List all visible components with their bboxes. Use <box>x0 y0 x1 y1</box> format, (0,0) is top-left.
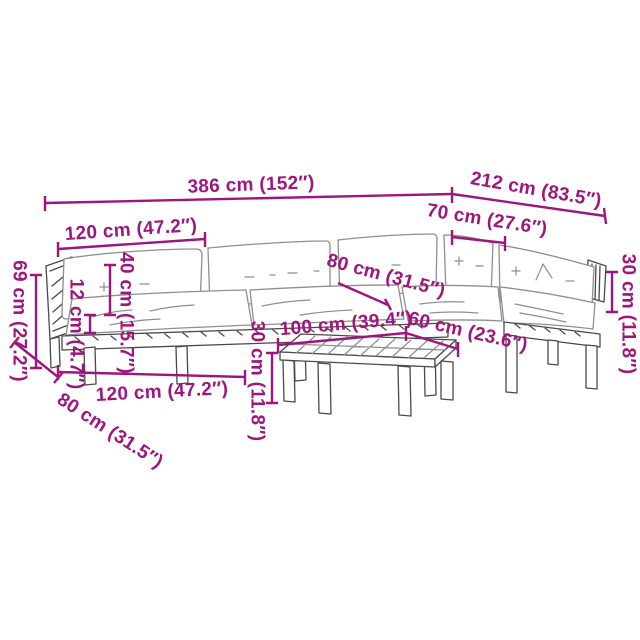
dimension-diagram-canvas: 386 cm (152″) 212 cm (83.5″) 120 cm (47.… <box>0 0 640 640</box>
dimension-label-total-height: 69 cm (27.2″) <box>10 260 29 382</box>
dimension-label-overall-width: 386 cm (152″) <box>187 173 315 196</box>
dimension-label-back-cushion-height: 30 cm (11.8″) <box>619 254 638 375</box>
dimension-label-backrest-height: 40 cm (15.7″) <box>117 252 136 374</box>
dimension-label-armrest-above-seat: 12 cm (4.7″) <box>67 279 86 390</box>
dimension-label-table-height: 30 cm (11.8″) <box>248 321 267 442</box>
